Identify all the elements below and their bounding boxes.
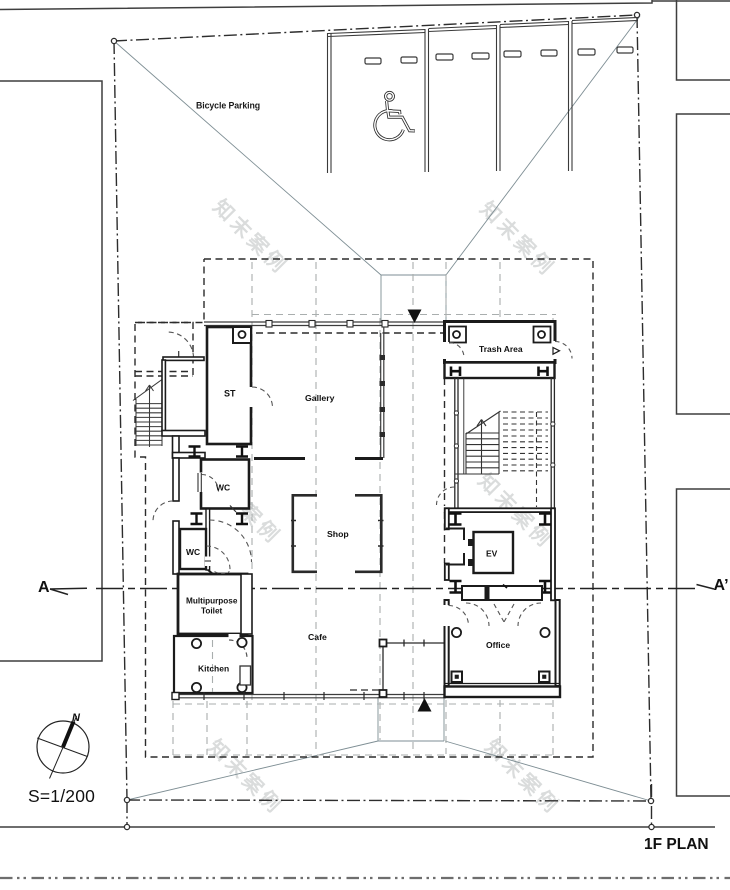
svg-text:Trash Area: Trash Area: [479, 344, 523, 354]
svg-text:Toilet: Toilet: [201, 607, 222, 616]
svg-text:Bicycle Parking: Bicycle Parking: [196, 101, 260, 111]
svg-text:Gallery: Gallery: [305, 393, 335, 403]
svg-text:知末案例: 知末案例: [203, 735, 288, 820]
svg-text:A’: A’: [714, 577, 729, 594]
svg-text:A: A: [38, 579, 50, 596]
svg-text:知末案例: 知末案例: [208, 195, 293, 280]
svg-text:S=1/200: S=1/200: [28, 786, 95, 806]
svg-text:1F PLAN: 1F PLAN: [644, 836, 709, 853]
svg-text:Multipurpose: Multipurpose: [186, 597, 238, 606]
svg-text:知末案例: 知末案例: [475, 197, 560, 282]
svg-text:Office: Office: [486, 640, 510, 650]
svg-text:Kitchen: Kitchen: [198, 664, 229, 674]
svg-text:ST: ST: [224, 389, 236, 399]
svg-text:Shop: Shop: [327, 529, 349, 539]
svg-text:WC: WC: [186, 547, 200, 557]
svg-text:WC: WC: [216, 483, 230, 493]
svg-text:Cafe: Cafe: [308, 632, 327, 642]
svg-text:知末案例: 知末案例: [480, 735, 565, 820]
svg-text:EV: EV: [486, 549, 498, 559]
svg-text:N: N: [72, 712, 81, 724]
